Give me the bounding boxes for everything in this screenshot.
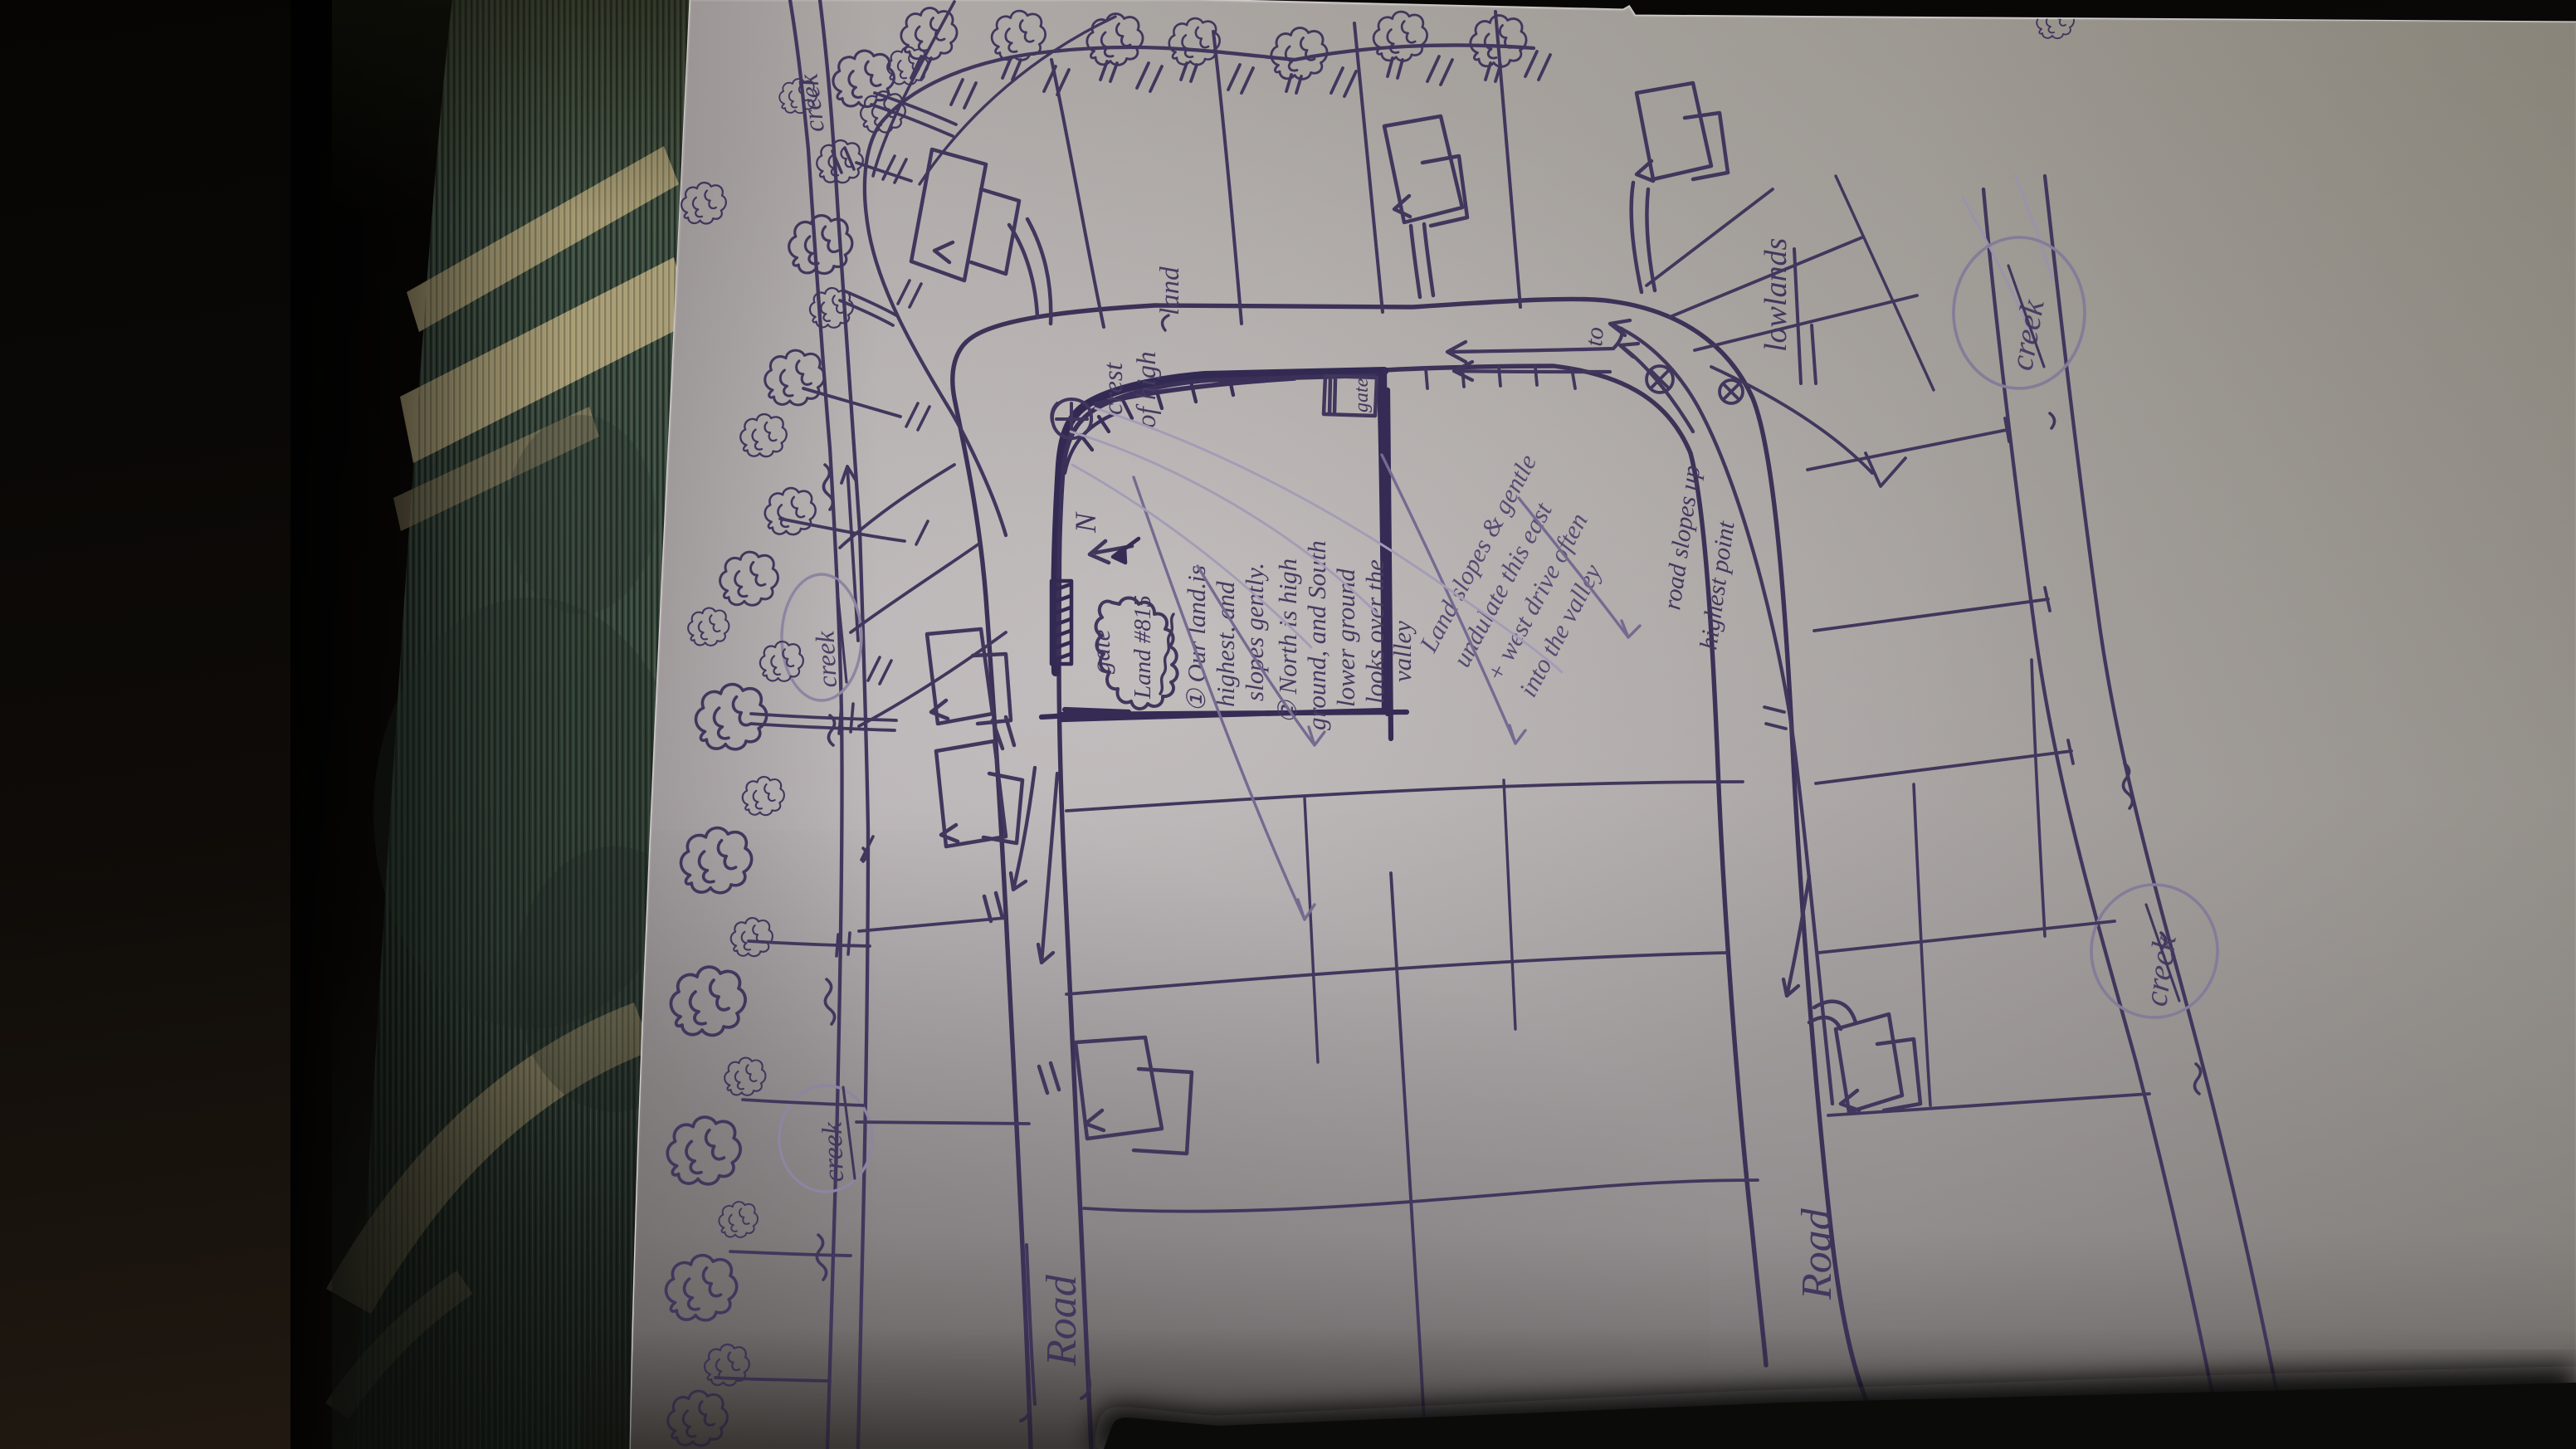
svg-text:① Our land.is: ① Our land.is [1182, 565, 1211, 712]
svg-text:lower ground: lower ground [1331, 568, 1360, 707]
svg-text:highest, and: highest, and [1211, 581, 1240, 707]
svg-text:N: N [1069, 511, 1102, 534]
svg-text:creek: creek [809, 630, 842, 689]
svg-text:of high: of high [1132, 351, 1162, 428]
svg-text:② North is high: ② North is high [1273, 559, 1302, 724]
svg-text:Land #815: Land #815 [1129, 595, 1156, 700]
svg-text:gate: gate [1351, 378, 1373, 412]
svg-text:to: to [1580, 325, 1609, 347]
svg-text:Road: Road [1793, 1207, 1841, 1300]
svg-text:land: land [1155, 266, 1185, 315]
svg-text:slopes gently.: slopes gently. [1240, 563, 1269, 701]
svg-text:looks over the: looks over the [1360, 559, 1389, 704]
svg-text:crest: crest [1099, 362, 1129, 415]
svg-text:creek: creek [817, 1121, 850, 1183]
svg-text:valley: valley [1388, 621, 1417, 682]
